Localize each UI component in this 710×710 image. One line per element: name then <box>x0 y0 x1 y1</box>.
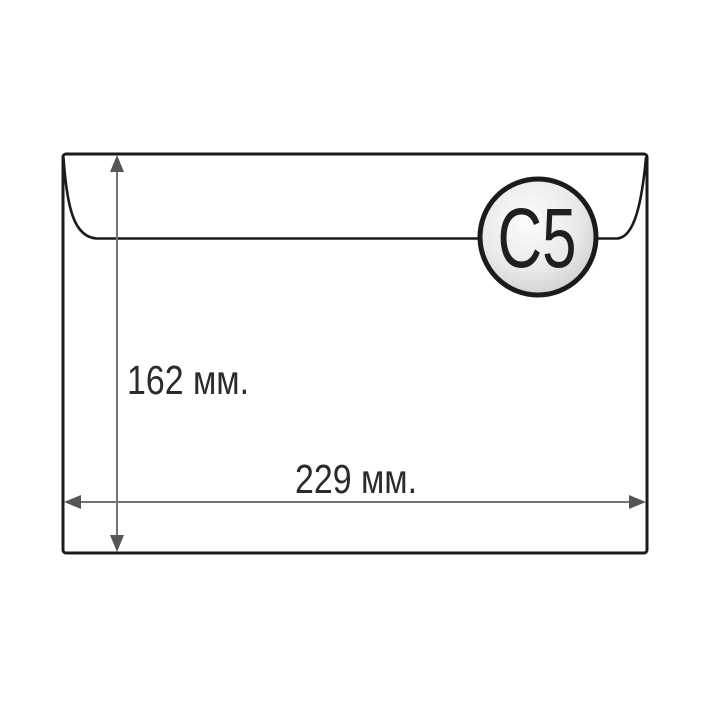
width-dimension-label: 229 мм. <box>295 456 417 502</box>
envelope-diagram: 162 мм. 229 мм. C5 <box>0 0 710 710</box>
envelope-diagram-canvas: 162 мм. 229 мм. C5 <box>0 0 710 710</box>
height-dimension-label: 162 мм. <box>127 357 249 403</box>
size-badge-label: C5 <box>498 191 577 285</box>
size-badge: C5 <box>480 179 596 295</box>
